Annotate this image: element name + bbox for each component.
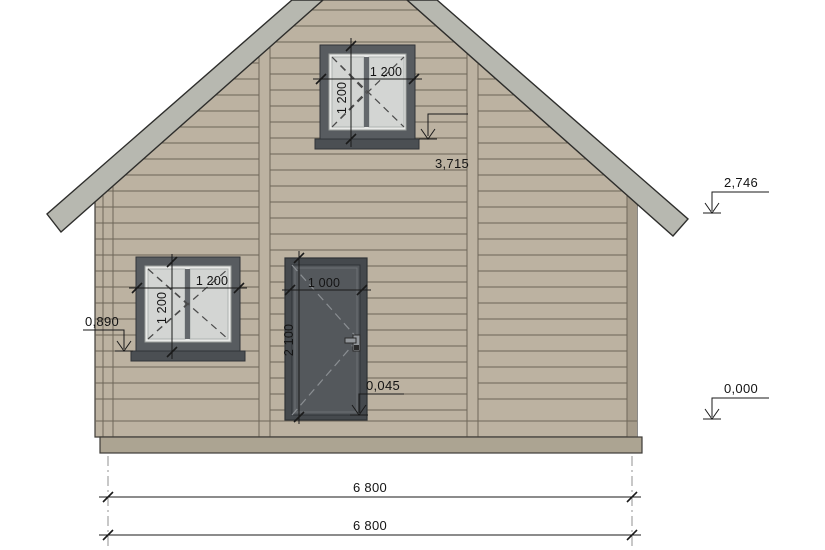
lower-window: [131, 257, 245, 361]
lower-window-sill: [131, 351, 245, 361]
door-height-label: 2 100: [282, 324, 296, 356]
upper-window: [315, 45, 419, 149]
door-width-label: 1 000: [308, 276, 340, 290]
total-width-upper-label: 6 800: [353, 480, 387, 495]
level-door-threshold-label: 0,045: [366, 378, 400, 393]
level-eaves-label: 2,746: [724, 175, 758, 190]
plinth: [100, 437, 642, 453]
house-elevation-drawing: 1 200 1 200 1 200 1 200: [0, 0, 825, 550]
upper-window-sill: [315, 139, 419, 149]
lower-window-height-label: 1 200: [155, 292, 169, 324]
level-upper-window-label: 3,715: [435, 156, 469, 171]
lower-window-width-label: 1 200: [196, 274, 228, 288]
dim-total-width-lower: 6 800: [99, 518, 641, 540]
upper-window-width-label: 1 200: [370, 65, 402, 79]
right-corner-board: [627, 190, 637, 437]
dim-total-width-upper: 6 800: [99, 480, 641, 502]
elevation-canvas: 1 200 1 200 1 200 1 200: [0, 0, 825, 550]
upper-window-height-label: 1 200: [335, 82, 349, 114]
total-width-lower-label: 6 800: [353, 518, 387, 533]
level-mark-eaves: 2,746: [703, 175, 769, 213]
level-lower-window-sill-label: 0,890: [85, 314, 119, 329]
level-ground-label: 0,000: [724, 381, 758, 396]
level-mark-ground: 0,000: [703, 381, 769, 419]
